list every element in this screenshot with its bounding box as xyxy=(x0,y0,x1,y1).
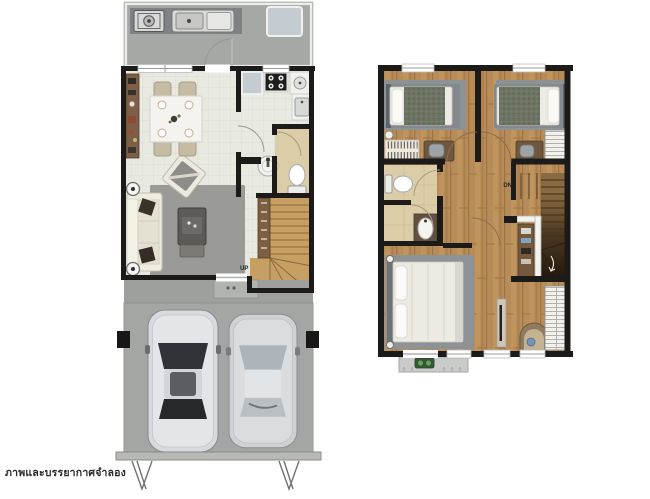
double-bed-icon xyxy=(387,262,463,342)
carport-post-icon xyxy=(306,331,319,348)
nightstand-lamp-icon xyxy=(387,342,394,349)
stool-icon xyxy=(527,338,535,346)
balcony-icon xyxy=(399,357,468,372)
car-icon xyxy=(145,310,221,452)
railing-white xyxy=(535,216,541,280)
bedroom-1 xyxy=(384,80,466,162)
simulation-disclaimer-caption: ภาพและบรรยากาศจำลอง xyxy=(5,464,126,481)
stove-icon xyxy=(264,72,288,92)
floorplan-image: UP xyxy=(0,0,650,499)
single-bed-icon xyxy=(386,84,460,128)
washbasin-icon xyxy=(414,214,437,243)
second-floor-plan: DN xyxy=(378,64,573,372)
desk-chair-icon xyxy=(520,145,534,157)
bathroom-2 xyxy=(381,165,437,243)
tv-console-icon xyxy=(497,299,506,347)
driveway-curb xyxy=(116,452,321,460)
kitchen-sink-icon xyxy=(290,72,312,120)
nightstand-lamp-icon xyxy=(387,256,394,263)
first-floor-plan: UP xyxy=(116,2,321,489)
carport-post-icon xyxy=(117,331,130,348)
gate-mark-icon xyxy=(279,461,299,489)
dressing-table-icon xyxy=(520,323,548,351)
coffee-table-icon xyxy=(178,208,206,257)
ac-unit-icon xyxy=(415,358,434,368)
wall-lamp-icon xyxy=(385,131,393,139)
single-bed-icon xyxy=(494,84,568,128)
toilet-icon xyxy=(288,165,306,195)
floorplan-svg: UP xyxy=(0,0,650,499)
stair-cabinet xyxy=(518,224,534,278)
utility-yard xyxy=(124,2,313,68)
back-door-opening xyxy=(205,65,230,73)
stairs-down-label: DN xyxy=(503,183,512,189)
car-icon xyxy=(226,314,300,447)
washing-machine-icon xyxy=(134,11,164,32)
front-door-opening xyxy=(216,274,247,282)
gate-mark-icon xyxy=(132,461,152,489)
sofa-icon xyxy=(127,193,162,271)
console-shelf-icon xyxy=(126,74,139,158)
laundry-sink-icon xyxy=(172,10,234,32)
wardrobe-icon xyxy=(545,130,567,162)
water-tank-icon xyxy=(267,7,302,36)
desk-chair-icon xyxy=(429,144,444,157)
stairs-up-label: UP xyxy=(240,266,248,272)
refrigerator-icon xyxy=(242,72,262,94)
toilet-icon xyxy=(385,175,413,193)
staircase-up-icon xyxy=(250,198,312,290)
stair-shelf xyxy=(258,198,270,258)
